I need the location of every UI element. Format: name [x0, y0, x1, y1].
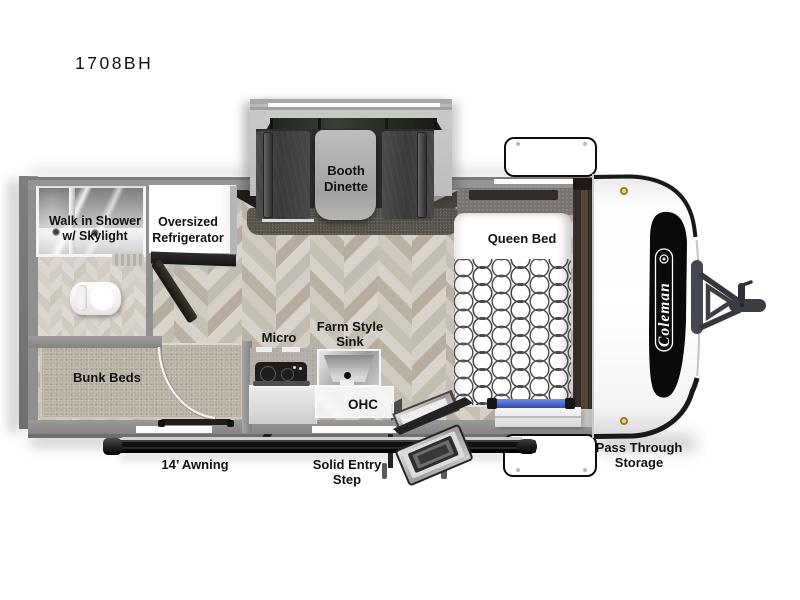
- svg-text:Coleman: Coleman: [656, 282, 673, 347]
